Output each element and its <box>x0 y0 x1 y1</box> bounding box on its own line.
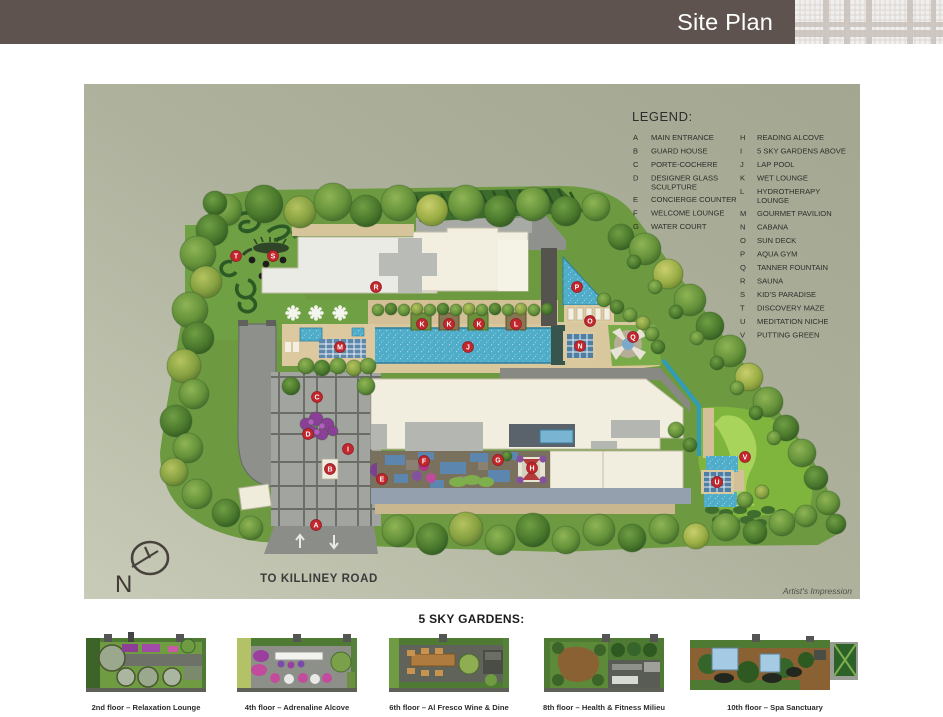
svg-text:N: N <box>577 344 582 351</box>
svg-text:E: E <box>633 195 638 204</box>
svg-text:T: T <box>740 304 745 313</box>
svg-text:B: B <box>633 147 638 156</box>
svg-text:L: L <box>740 187 744 196</box>
svg-text:L: L <box>514 322 519 329</box>
svg-text:N: N <box>115 571 132 598</box>
svg-text:G: G <box>633 222 639 231</box>
svg-text:O: O <box>740 236 746 245</box>
svg-text:GOURMET PAVILION: GOURMET PAVILION <box>757 209 832 218</box>
svg-text:B: B <box>327 467 332 474</box>
svg-text:P: P <box>575 285 580 292</box>
svg-text:S: S <box>271 254 276 261</box>
svg-text:N: N <box>740 223 745 232</box>
svg-text:SCULPTURE: SCULPTURE <box>651 183 697 192</box>
svg-text:K: K <box>419 322 424 329</box>
svg-text:TO KILLINEY ROAD: TO KILLINEY ROAD <box>260 573 378 585</box>
svg-text:DESIGNER GLASS: DESIGNER GLASS <box>651 174 718 183</box>
svg-text:R: R <box>740 277 746 286</box>
svg-text:H: H <box>529 466 534 473</box>
svg-text:D: D <box>305 432 310 439</box>
svg-text:A: A <box>313 523 318 530</box>
svg-text:Q: Q <box>630 335 636 342</box>
svg-text:O: O <box>587 319 593 326</box>
svg-text:Artist's Impression: Artist's Impression <box>782 586 852 596</box>
svg-text:F: F <box>633 209 638 218</box>
svg-text:T: T <box>234 254 239 261</box>
svg-text:SAUNA: SAUNA <box>757 277 784 286</box>
svg-text:K: K <box>740 174 745 183</box>
svg-text:KID'S PARADISE: KID'S PARADISE <box>757 290 816 299</box>
svg-text:WATER COURT: WATER COURT <box>651 222 707 231</box>
svg-text:E: E <box>380 477 385 484</box>
svg-text:H: H <box>740 133 745 142</box>
svg-text:CABANA: CABANA <box>757 223 789 232</box>
svg-text:D: D <box>633 174 639 183</box>
svg-text:G: G <box>495 458 501 465</box>
svg-text:WET LOUNGE: WET LOUNGE <box>757 174 808 183</box>
svg-text:U: U <box>740 317 745 326</box>
svg-text:Q: Q <box>740 263 746 272</box>
svg-text:MEDITATION NICHE: MEDITATION NICHE <box>757 317 828 326</box>
svg-text:I: I <box>347 447 349 454</box>
svg-text:HYDROTHERAPY: HYDROTHERAPY <box>757 187 820 196</box>
svg-text:PUTTING GREEN: PUTTING GREEN <box>757 331 819 340</box>
svg-text:PORTE-COCHERE: PORTE-COCHERE <box>651 160 718 169</box>
svg-text:R: R <box>373 285 378 292</box>
svg-text:C: C <box>633 160 639 169</box>
svg-text:MAIN ENTRANCE: MAIN ENTRANCE <box>651 133 714 142</box>
svg-text:TANNER FOUNTAIN: TANNER FOUNTAIN <box>757 263 828 272</box>
svg-text:U: U <box>714 480 719 487</box>
svg-text:P: P <box>740 250 745 259</box>
svg-text:C: C <box>314 395 319 402</box>
svg-text:WELCOME LOUNGE: WELCOME LOUNGE <box>651 209 724 218</box>
svg-text:V: V <box>743 455 748 462</box>
svg-text:K: K <box>476 322 481 329</box>
svg-text:SUN DECK: SUN DECK <box>757 236 796 245</box>
svg-text:LAP POOL: LAP POOL <box>757 160 794 169</box>
svg-text:K: K <box>446 322 451 329</box>
svg-text:I: I <box>740 147 742 156</box>
svg-text:J: J <box>466 345 470 352</box>
svg-text:F: F <box>422 459 427 466</box>
svg-text:LEGEND:: LEGEND: <box>632 109 693 124</box>
svg-text:5 SKY GARDENS ABOVE: 5 SKY GARDENS ABOVE <box>757 147 846 156</box>
svg-text:M: M <box>337 345 343 352</box>
svg-text:DISCOVERY MAZE: DISCOVERY MAZE <box>757 304 825 313</box>
svg-text:AQUA GYM: AQUA GYM <box>757 250 798 259</box>
svg-text:GUARD HOUSE: GUARD HOUSE <box>651 147 708 156</box>
svg-text:CONCIERGE COUNTER: CONCIERGE COUNTER <box>651 195 737 204</box>
svg-text:M: M <box>740 209 746 218</box>
svg-text:LOUNGE: LOUNGE <box>757 196 789 205</box>
svg-text:S: S <box>740 290 745 299</box>
svg-text:J: J <box>740 160 744 169</box>
svg-text:READING ALCOVE: READING ALCOVE <box>757 133 824 142</box>
